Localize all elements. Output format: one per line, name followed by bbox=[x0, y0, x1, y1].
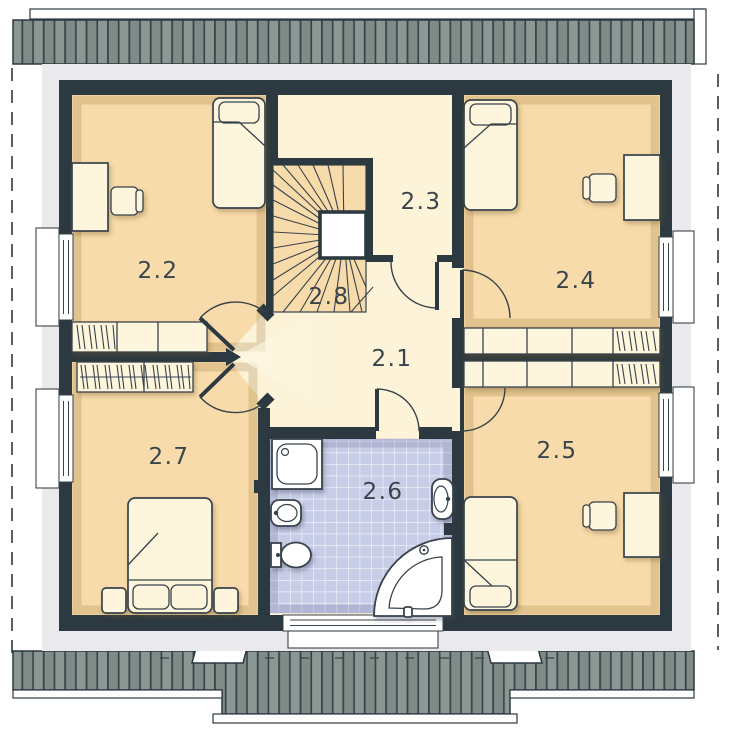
washbasin-right bbox=[432, 479, 453, 519]
bath-wall-top-left bbox=[258, 427, 376, 439]
double-bed-2-7 bbox=[128, 498, 212, 613]
stair-wall-top bbox=[266, 158, 373, 165]
hall-east-wall bbox=[452, 318, 464, 388]
room-label-2-2: 2.2 bbox=[137, 258, 178, 284]
wall-2-3-hall-left bbox=[366, 255, 393, 262]
toilet bbox=[271, 543, 311, 568]
roof-top-slope bbox=[13, 20, 694, 64]
room-label-2-1: 2.1 bbox=[371, 346, 412, 372]
desk-2-2 bbox=[72, 163, 108, 231]
washbasin bbox=[271, 500, 301, 526]
roof-ridge-strip bbox=[30, 9, 704, 19]
floor-plan-page: 2.1 2.2 2.3 2.4 2.5 2.6 2.7 2.8 bbox=[0, 0, 732, 736]
nightstand bbox=[214, 588, 238, 613]
shower bbox=[272, 439, 322, 489]
chair-2-2 bbox=[111, 187, 143, 215]
room-label-2-3: 2.3 bbox=[400, 189, 441, 215]
room-label-2-4: 2.4 bbox=[555, 268, 596, 294]
wall-2-3-2-4 bbox=[452, 95, 464, 268]
wall-nib bbox=[254, 480, 266, 493]
wardrobe-2-5 bbox=[464, 361, 660, 387]
room-label-2-8: 2.8 bbox=[308, 284, 349, 310]
window-south-2-6 bbox=[283, 615, 443, 648]
bath-wall-top-right bbox=[419, 427, 452, 439]
single-bed-2-5 bbox=[464, 497, 517, 610]
window-east-2-4 bbox=[659, 231, 694, 323]
desk-2-5 bbox=[624, 493, 660, 557]
wall-2-2-2-3 bbox=[266, 95, 278, 165]
wardrobe-2-7 bbox=[77, 362, 193, 392]
single-bed-2-2 bbox=[213, 98, 265, 208]
roof-top bbox=[13, 9, 706, 64]
closet-divider-wall-east bbox=[464, 354, 672, 361]
window-west-2-2 bbox=[36, 228, 73, 326]
wardrobe-2-2 bbox=[72, 322, 207, 352]
window-east-2-5 bbox=[659, 387, 694, 483]
room-label-2-5: 2.5 bbox=[536, 438, 577, 464]
wall-2-2-2-7 bbox=[59, 352, 226, 362]
chair-2-5 bbox=[583, 502, 616, 530]
stair-void bbox=[320, 212, 366, 258]
room-label-2-6: 2.6 bbox=[362, 479, 403, 505]
window-west-2-7 bbox=[36, 389, 73, 488]
wall-nib bbox=[444, 523, 454, 535]
chair-2-4 bbox=[583, 174, 616, 202]
roof-gable-band bbox=[694, 9, 706, 64]
desk-2-4 bbox=[624, 155, 660, 220]
room-label-2-7: 2.7 bbox=[148, 444, 189, 470]
floor-plan-drawing: 2.1 2.2 2.3 2.4 2.5 2.6 2.7 2.8 bbox=[0, 0, 732, 736]
stair-wall-left bbox=[266, 158, 273, 313]
nightstand bbox=[102, 588, 126, 613]
roof-eave-fascia bbox=[510, 690, 694, 698]
roof-eave-fascia bbox=[13, 690, 222, 698]
stair-wall-right bbox=[366, 158, 373, 262]
roof-eave-fascia bbox=[213, 714, 517, 723]
single-bed-2-4 bbox=[464, 100, 517, 210]
wall-2-7-2-6 bbox=[258, 408, 270, 615]
wardrobe-2-4 bbox=[464, 328, 660, 354]
